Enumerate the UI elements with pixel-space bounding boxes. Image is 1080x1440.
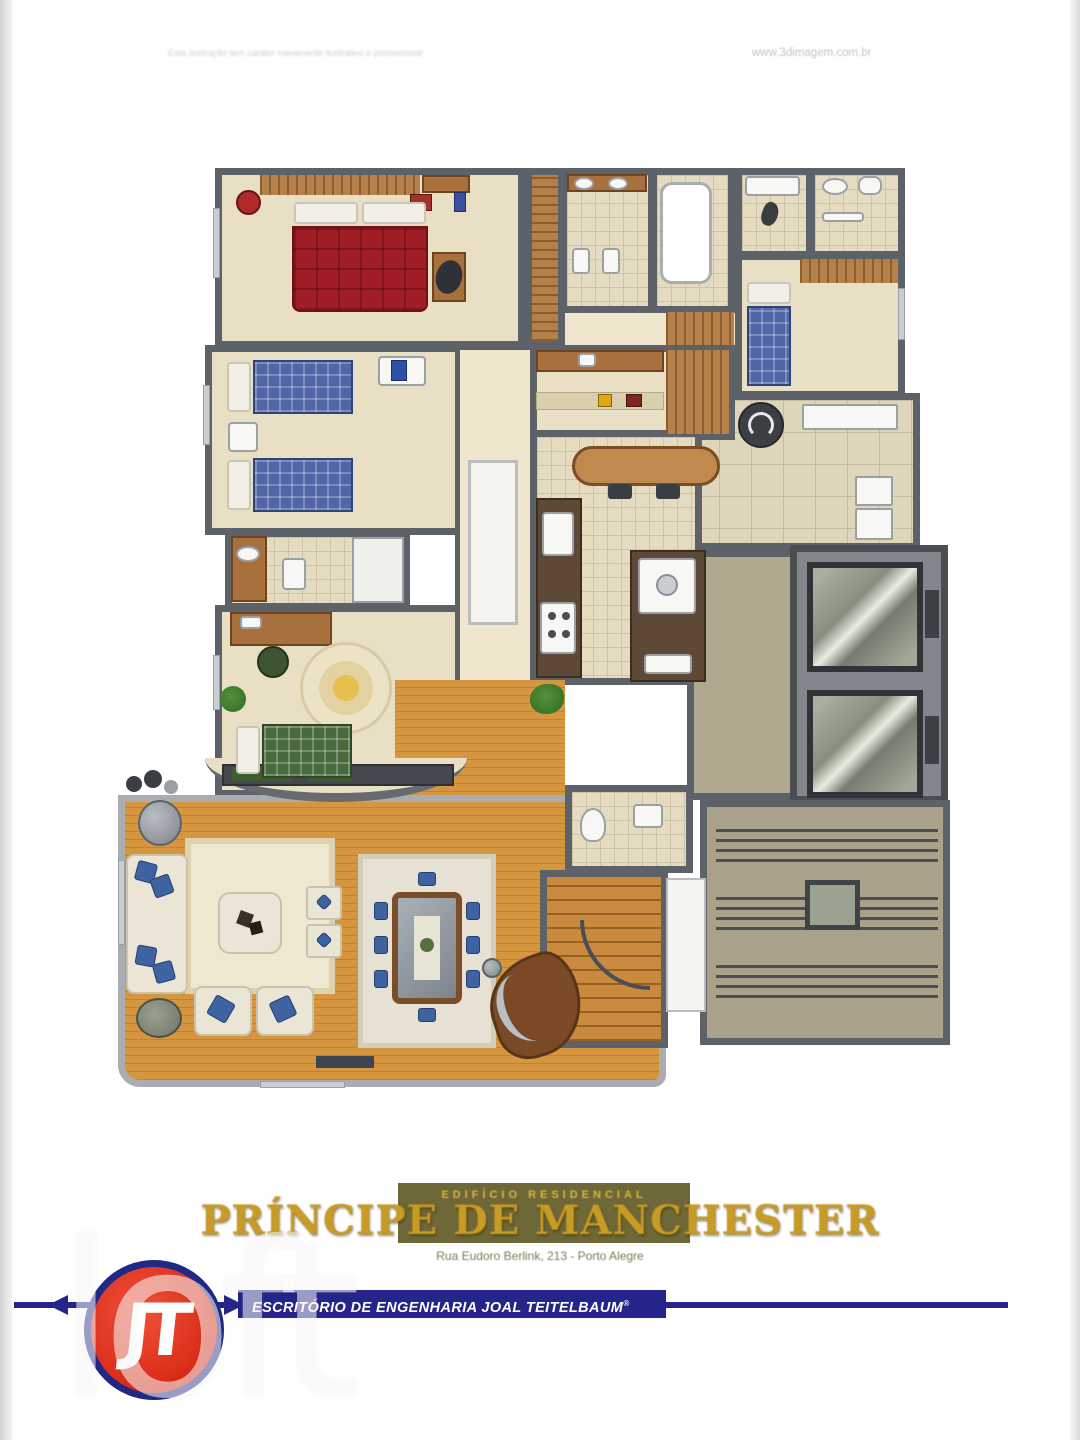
- copa-yellow-item: [598, 394, 612, 407]
- window-bedroom3: [213, 655, 220, 710]
- page-edge-right: [1070, 0, 1080, 1440]
- maid-bed-pillow: [747, 282, 791, 304]
- washing-machine-lid: [748, 412, 774, 438]
- bath1-sink-1: [574, 177, 594, 190]
- living-pot-3: [164, 780, 178, 794]
- dining-chair-r3: [466, 970, 480, 988]
- shower-tray: [745, 176, 800, 196]
- stair-flight-3: [716, 962, 938, 998]
- green-bed: [262, 724, 352, 778]
- bath2-shower: [352, 537, 404, 603]
- window-living-left: [118, 860, 125, 945]
- kitchen-sink: [542, 512, 574, 556]
- master-dresser: [422, 175, 470, 193]
- master-bed-pillow-1: [294, 202, 358, 224]
- copa-counter: [536, 350, 664, 372]
- bath-right-toilet: [858, 176, 882, 195]
- window-maid: [898, 288, 905, 340]
- window-master: [213, 208, 220, 278]
- hallway-closet-panel: [468, 460, 518, 625]
- stove-burner-3: [548, 630, 556, 638]
- disclaimer-text: Esta ilustração tem caráter meramente il…: [168, 48, 438, 58]
- website-url: www.3dimagem.com.br: [752, 47, 872, 59]
- side-table-bottom-left: [136, 998, 182, 1038]
- bedroom3-papers: [240, 616, 262, 629]
- trademark-symbol: ®: [623, 1299, 629, 1308]
- bath-right-shelf: [822, 212, 864, 222]
- master-bed-pillow-2: [362, 202, 426, 224]
- water-heater-top: [855, 476, 893, 506]
- window-twin-bedroom: [203, 385, 210, 445]
- breakfast-table: [572, 446, 720, 486]
- round-rug-center: [333, 675, 359, 701]
- breakfast-stool-1: [608, 484, 632, 499]
- corridor-closet: [666, 312, 734, 345]
- dining-chair-r2: [466, 936, 480, 954]
- elevator-2: [807, 690, 923, 798]
- bedroom3-plant: [220, 686, 246, 712]
- bathtub: [660, 182, 712, 284]
- twin-bed-1: [253, 360, 353, 414]
- dining-chair-r1: [466, 902, 480, 920]
- dining-chair-bottom: [418, 1008, 436, 1022]
- twin-bed-2: [253, 458, 353, 512]
- bath1-sink-2: [608, 177, 628, 190]
- pantry-shelves: [666, 350, 730, 434]
- master-closet: [525, 168, 565, 348]
- twin-desk-item: [391, 360, 407, 381]
- stair-landing-box: [805, 880, 860, 930]
- elevator-1: [807, 562, 923, 672]
- floor-plan: [110, 160, 955, 1105]
- elevator-1-counterweight: [925, 590, 939, 638]
- loft-watermark: loft: [56, 1230, 348, 1413]
- water-heater-bottom: [855, 508, 893, 540]
- living-low-cabinet: [316, 1056, 374, 1068]
- bath2-toilet: [282, 558, 306, 590]
- master-bed-red: [292, 226, 428, 312]
- entry-plant: [530, 684, 564, 714]
- dining-chair-top: [418, 872, 436, 886]
- living-pot-1: [126, 776, 142, 792]
- bath1-toilet: [602, 248, 620, 274]
- dining-chair-l2: [374, 936, 388, 954]
- dining-chair-l3: [374, 970, 388, 988]
- stair-flight-1: [716, 826, 938, 862]
- breakfast-stool-2: [656, 484, 680, 499]
- lavabo-toilet: [580, 808, 606, 842]
- bath2-sink: [236, 546, 260, 562]
- island-appliance: [644, 654, 692, 674]
- twin-bed-2-pillow: [227, 460, 251, 510]
- maid-bed: [747, 306, 791, 386]
- maid-wardrobe: [800, 259, 898, 283]
- page-edge-left: [0, 0, 12, 1440]
- living-pot-2: [144, 770, 162, 788]
- dining-chair-l1: [374, 902, 388, 920]
- green-bed-pillow: [236, 726, 260, 774]
- laundry-tank-counter: [802, 404, 898, 430]
- twin-nightstand: [228, 422, 258, 452]
- bath1-bidet: [572, 248, 590, 274]
- stove-burner-4: [562, 630, 570, 638]
- master-blue-item: [454, 192, 466, 212]
- island-sink-bowl: [656, 574, 678, 596]
- master-wardrobe: [260, 175, 420, 195]
- bath-right-sink: [822, 178, 848, 195]
- bedroom3-chair: [257, 646, 289, 678]
- stove-burner-1: [548, 612, 556, 620]
- kitchen-stove: [540, 602, 576, 654]
- window-living-bottom: [260, 1081, 345, 1088]
- dining-centerpiece: [420, 938, 434, 952]
- copa-red-item: [626, 394, 642, 407]
- elevator-2-counterweight: [925, 716, 939, 764]
- copa-sink: [578, 353, 596, 367]
- stove-burner-2: [562, 612, 570, 620]
- master-pouf: [236, 190, 261, 215]
- living-side-table-top: [138, 800, 182, 846]
- twin-bed-1-pillow: [227, 362, 251, 412]
- piano-stool: [482, 958, 502, 978]
- stair-door-panel: [666, 878, 706, 1012]
- scanned-floor-plan-page: Esta ilustração tem caráter meramente il…: [0, 0, 1080, 1440]
- lavabo-sink: [633, 804, 663, 828]
